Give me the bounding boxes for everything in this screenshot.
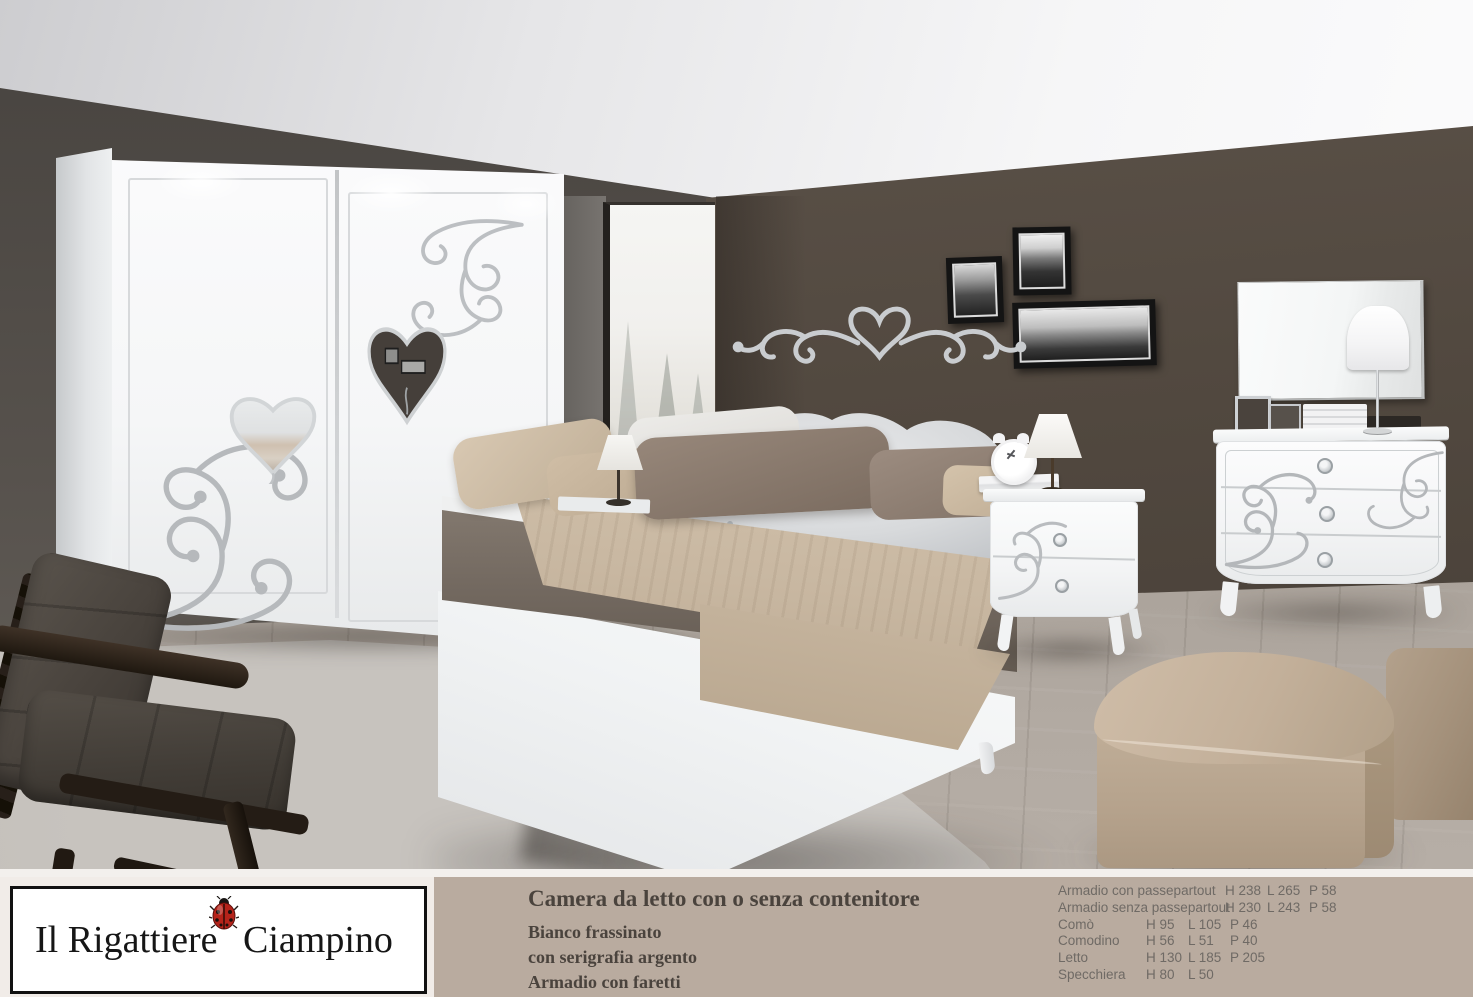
dim-value: P 46 [1230,917,1272,934]
heart-mirror-left [224,384,322,484]
catalog-page: Il Rigattiere Ciampino [0,0,1473,997]
dim-value: H 230 [1225,900,1267,917]
dim-value: H 130 [1146,950,1188,967]
dimension-row: Letto H 130 L 185 P 205 [1058,950,1351,967]
dimension-row: Armadio senza passepartout H 230 L 243 P… [1058,900,1351,917]
serigraphy-flourish-icon [995,507,1087,607]
clock-hand [1007,453,1015,458]
drawer-knob [1319,506,1335,522]
dresser [1213,396,1453,626]
bed-throw-texture [505,455,1020,685]
mirror [1237,280,1424,401]
wardrobe-left-door-frame [128,178,328,594]
nightstand-body [990,501,1138,617]
bed-leg [978,741,995,774]
dresser-shadow [1205,600,1461,626]
caption-bar: Il Rigattiere Ciampino [0,869,1473,997]
logo-box: Il Rigattiere Ciampino [10,886,427,994]
window [603,202,715,510]
dim-label: Specchiera [1058,967,1146,984]
lamp-base [606,499,631,506]
dim-value: H 95 [1146,917,1188,934]
heart-mirror-right [362,312,452,434]
ladybug-icon [209,896,239,930]
dim-label: Comodino [1058,933,1146,950]
caption-line: Bianco frassinato [528,920,697,945]
pouf-top-face [1094,652,1394,764]
wardrobe-door-split [335,170,339,618]
lamp-shade [597,435,643,470]
pouf-front-face [1097,726,1365,868]
drawer-knob [1053,533,1067,547]
bedside-lamp-left [595,435,645,507]
dimension-row: Specchiera H 80 L 50 [1058,967,1351,984]
dim-value: H 238 [1225,883,1267,900]
armchair-front-rail [58,772,310,835]
magazine-stack [1303,404,1367,430]
nightstand-lamp-stem [1051,458,1054,492]
armchair-seat-cushion [16,688,298,832]
pillow [633,425,892,520]
photo-frame [1269,404,1301,436]
armchair-seat-seams [16,688,298,832]
alarm-clock [991,439,1037,485]
serigraphy-flourish-icon [386,218,536,353]
dim-label: Comò [1058,917,1146,934]
nightstand-lamp-shade [1024,414,1082,458]
nightstand-leg [1108,616,1125,655]
dresser-top [1213,426,1449,442]
books-stack [979,474,1060,493]
drawer-knob [1055,579,1069,593]
dim-value: P 58 [1309,883,1351,900]
clock-hand [1007,450,1016,460]
caption-description: Bianco frassinato con serigrafia argento… [528,920,697,995]
nightstand-top [983,489,1145,501]
logo-text-right: Ciampino [243,921,393,959]
window-tree [646,353,688,510]
wall-picture-panorama [1012,299,1157,369]
pouf-back [1386,648,1473,820]
dim-label: Letto [1058,950,1146,967]
headboard-scroll-decor-icon [732,288,1027,396]
dresser-leg [1219,581,1238,616]
dimensions-table: Armadio con passepartout H 238 L 265 P 5… [1058,883,1351,984]
pouf-piping [1102,738,1381,766]
armchair-back-slats [0,572,69,820]
dimension-row: Comò H 95 L 105 P 46 [1058,917,1351,934]
bed-throw [505,455,1020,685]
serigraphy-flourish-icon [1355,446,1447,542]
drawer-knob [1317,458,1333,474]
dim-value: L 105 [1188,917,1230,934]
dim-value [1230,967,1272,984]
alarm-clock-bell [1017,433,1029,443]
dimension-row: Armadio con passepartout H 238 L 265 P 5… [1058,883,1351,900]
dim-value: P 205 [1230,950,1272,967]
alarm-clock-bell [993,433,1005,443]
left-nightstand-top [558,496,650,513]
dresser-trim-line [1225,450,1439,576]
window-sill [596,503,722,516]
dresser-drawer-divider [1221,486,1441,492]
pouf-front-side [1326,714,1394,858]
drawer-knob [1317,552,1333,568]
dim-value: P 40 [1230,933,1272,950]
dim-value: H 80 [1146,967,1188,984]
window-tree [612,321,644,503]
dim-value: L 243 [1267,900,1309,917]
armchair-back-seams [0,549,175,813]
caption-title: Camera da letto con o senza contenitore [528,886,920,912]
window-snow-mound [603,476,715,510]
wall-corner-shadow [716,196,806,616]
bed-throw-drape [700,590,1020,760]
dresser-leg [1423,585,1442,618]
wardrobe-right-door-frame [348,192,548,622]
dresser-lamp-shade [1347,306,1409,370]
armchair-armrest [0,624,250,691]
dimension-row: Comodino H 56 L 51 P 40 [1058,933,1351,950]
wall-picture-small-right [1012,226,1071,295]
logo-text-left: Il Rigattiere [35,921,218,959]
dim-value: H 56 [1146,933,1188,950]
nightstand-leg [997,614,1014,651]
pillow [626,405,802,478]
lamp-stem [617,470,620,503]
armchair-back-cushion [0,549,175,813]
photo-frame [1235,396,1271,438]
dim-value: L 185 [1188,950,1230,967]
dresser-body [1216,441,1446,584]
dim-label: Armadio senza passepartout [1058,900,1225,917]
spotlight-glow [476,176,576,232]
nightstand [983,437,1153,667]
dim-value: L 50 [1188,967,1230,984]
dim-value: P 58 [1309,900,1351,917]
caption-separator [0,869,1473,877]
dim-value: L 51 [1188,933,1230,950]
nightstand-leg [1128,608,1142,639]
spotlight-glow [136,152,266,212]
dark-box [1367,416,1421,430]
bed-headboard [645,362,1020,567]
dresser-drawer-divider [1221,532,1441,538]
serigraphy-flourish-icon [1221,454,1331,576]
nightstand-shadow [979,637,1159,663]
caption-line: con serigrafia argento [528,945,697,970]
dim-label: Armadio con passepartout [1058,883,1225,900]
nightstand-drawer-divider [993,555,1135,560]
spotlight-glow [326,162,456,224]
wall-picture-small-left [946,256,1004,324]
dim-value: L 265 [1267,883,1309,900]
caption-line: Armadio con faretti [528,970,697,995]
window-tree [680,373,715,510]
nightstand-lamp-base [1040,487,1064,495]
